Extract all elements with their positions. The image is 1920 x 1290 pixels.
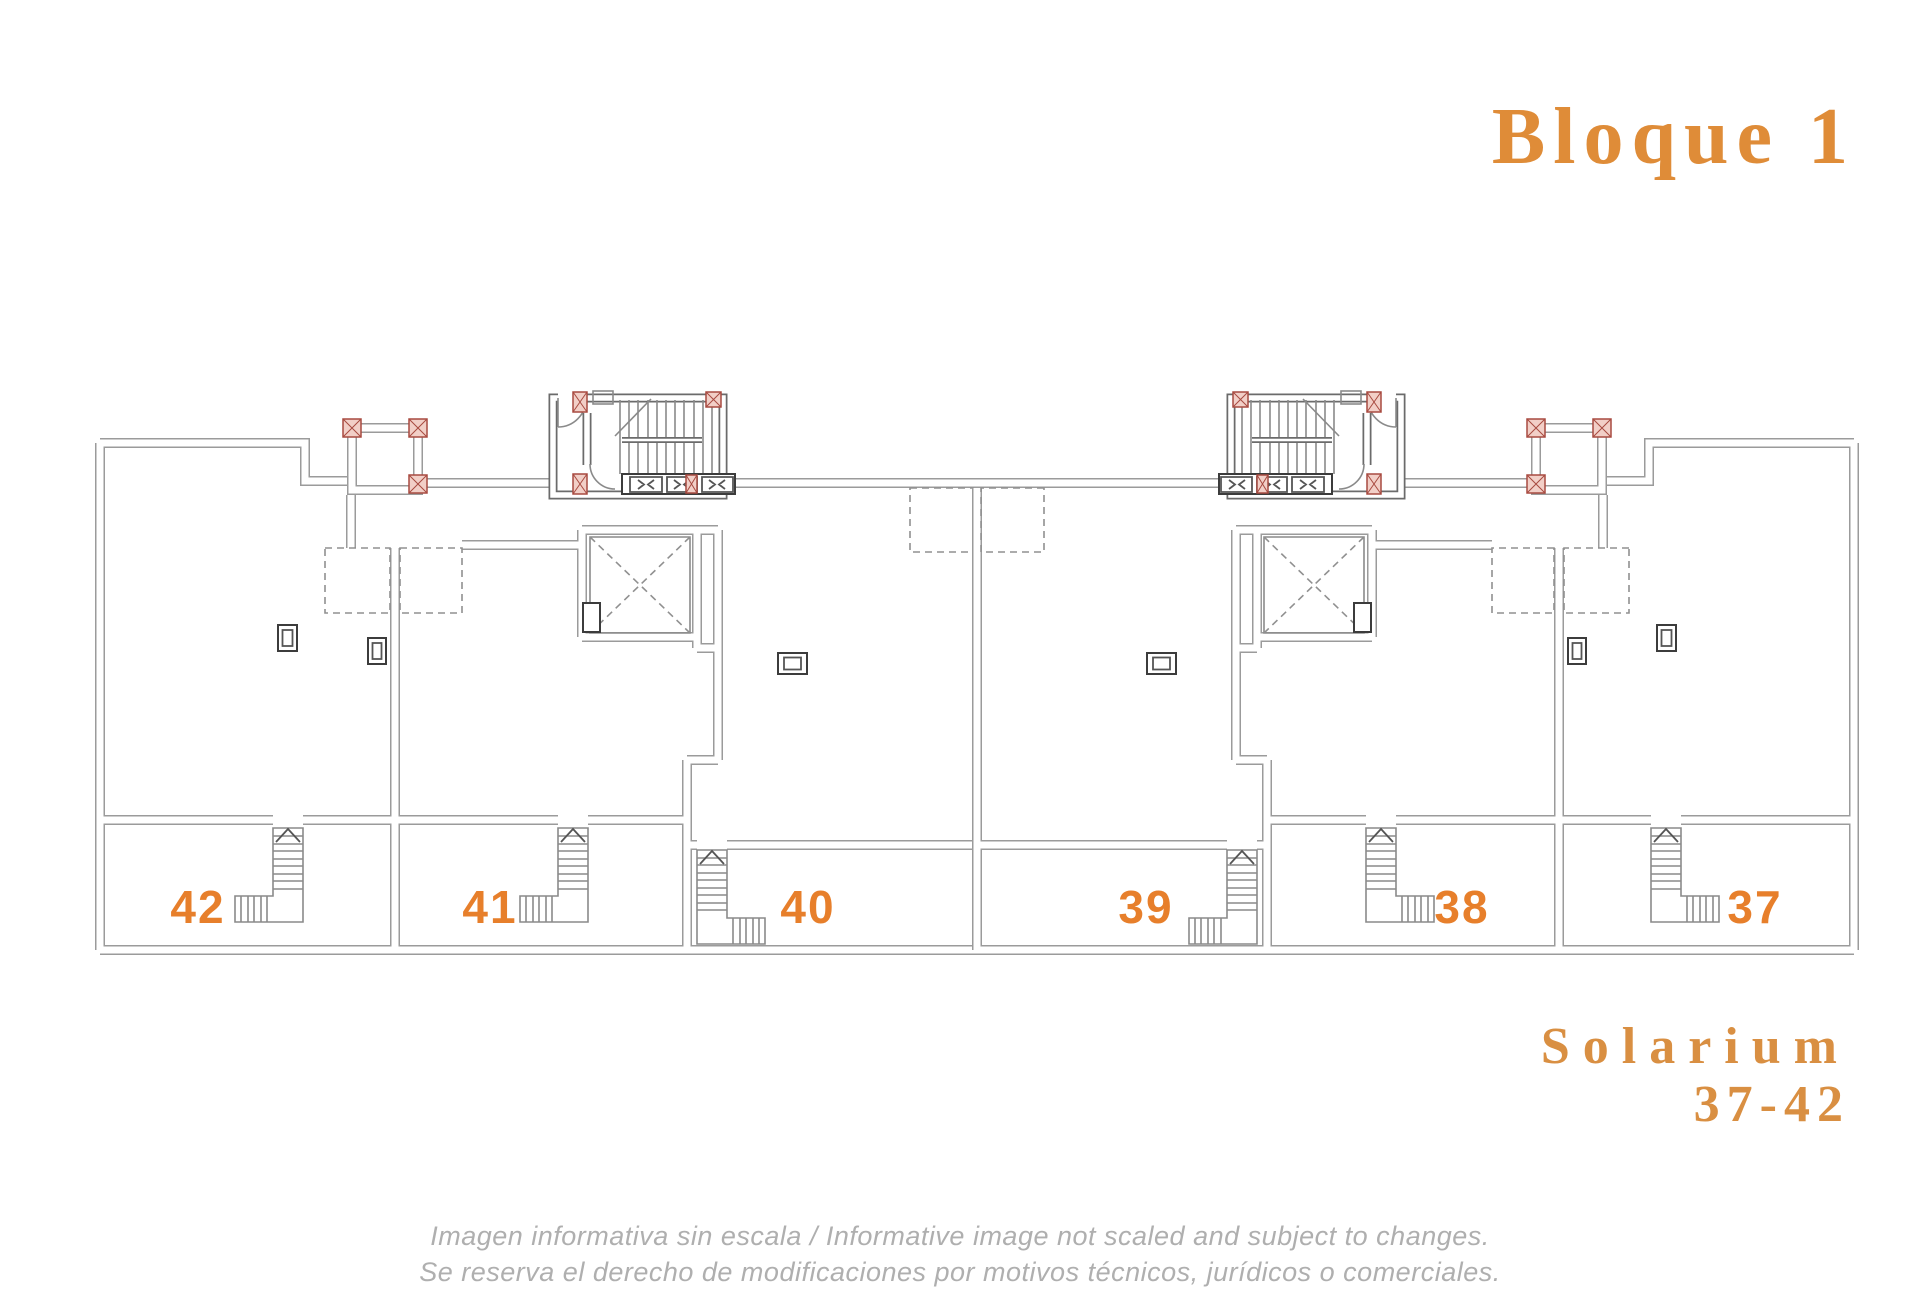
unit-label-37: 37: [1727, 880, 1782, 934]
left-wing: [100, 391, 977, 950]
disclaimer-line-2: Se reserva el derecho de modificaciones …: [0, 1254, 1920, 1290]
floor-type-label: Solarium: [1541, 1018, 1850, 1076]
unit-label-38: 38: [1434, 880, 1489, 934]
unit-label-41: 41: [462, 880, 517, 934]
unit-range-label: 37-42: [1541, 1076, 1850, 1134]
page: { "header": { "block_title": "Bloque 1" …: [0, 0, 1920, 1280]
floor-caption: Solarium 37-42: [1541, 1018, 1850, 1134]
unit-label-40: 40: [780, 880, 835, 934]
disclaimer: Imagen informativa sin escala / Informat…: [0, 1218, 1920, 1290]
block-title: Bloque 1: [1492, 92, 1856, 183]
unit-label-42: 42: [170, 880, 225, 934]
right-wing: [977, 391, 1854, 950]
disclaimer-line-1: Imagen informativa sin escala / Informat…: [0, 1218, 1920, 1254]
unit-label-39: 39: [1118, 880, 1173, 934]
